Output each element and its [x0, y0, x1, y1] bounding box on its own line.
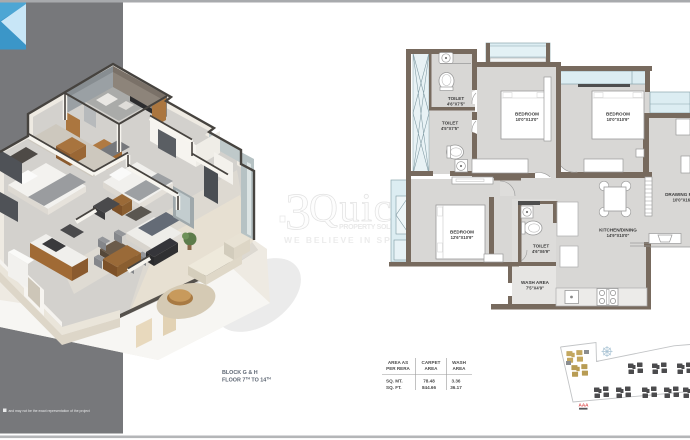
svg-text:78.48: 78.48: [423, 379, 435, 384]
svg-text:7'5"X4'9": 7'5"X4'9": [526, 286, 544, 291]
svg-text:12'6"X10'9": 12'6"X10'9": [451, 235, 474, 240]
svg-text:AREA: AREA: [424, 366, 438, 371]
svg-text:DRAWING ROOM: DRAWING ROOM: [665, 192, 690, 197]
svg-text:3.36: 3.36: [452, 379, 461, 384]
svg-text:10'0"X13'0": 10'0"X13'0": [516, 117, 539, 122]
svg-text:844.66: 844.66: [422, 385, 436, 390]
svg-text:10'0"X10'9": 10'0"X10'9": [607, 117, 630, 122]
svg-text:TOILET: TOILET: [448, 96, 464, 101]
svg-text:36.17: 36.17: [450, 385, 462, 390]
svg-text:AAA: AAA: [579, 403, 590, 408]
svg-text:3: 3: [285, 184, 311, 241]
svg-text:4'6"X6'9": 4'6"X6'9": [532, 249, 550, 254]
svg-text:BLOCK G & H: BLOCK G & H: [222, 370, 258, 376]
svg-text:4'6"X7'5": 4'6"X7'5": [447, 102, 465, 107]
svg-text:and may not be the exact repre: and may not be the exact representation …: [9, 409, 90, 413]
svg-text:SQ. MT.: SQ. MT.: [386, 379, 403, 384]
svg-text:10'0"X16'9": 10'0"X16'9": [673, 198, 690, 203]
svg-text:14'9"X10'0": 14'9"X10'0": [607, 233, 630, 238]
svg-text:TOILET: TOILET: [442, 121, 458, 126]
svg-text:BEDROOM: BEDROOM: [606, 112, 630, 117]
svg-text:TOILET: TOILET: [533, 244, 549, 249]
svg-text:SQ. FT.: SQ. FT.: [386, 385, 402, 390]
svg-text:4'5"X7'5": 4'5"X7'5": [441, 126, 459, 131]
svg-text:AREA: AREA: [452, 366, 466, 371]
svg-text:KITCHEN/DINING: KITCHEN/DINING: [599, 228, 637, 233]
svg-text:PER RERA: PER RERA: [386, 366, 410, 371]
svg-text:BEDROOM: BEDROOM: [450, 230, 474, 235]
svg-text:AREA AS: AREA AS: [388, 360, 408, 365]
svg-text:WASH: WASH: [452, 360, 466, 365]
svg-text:CARPET: CARPET: [422, 360, 441, 365]
svg-text:WASH AREA: WASH AREA: [521, 280, 550, 285]
svg-text:BEDROOM: BEDROOM: [515, 112, 539, 117]
